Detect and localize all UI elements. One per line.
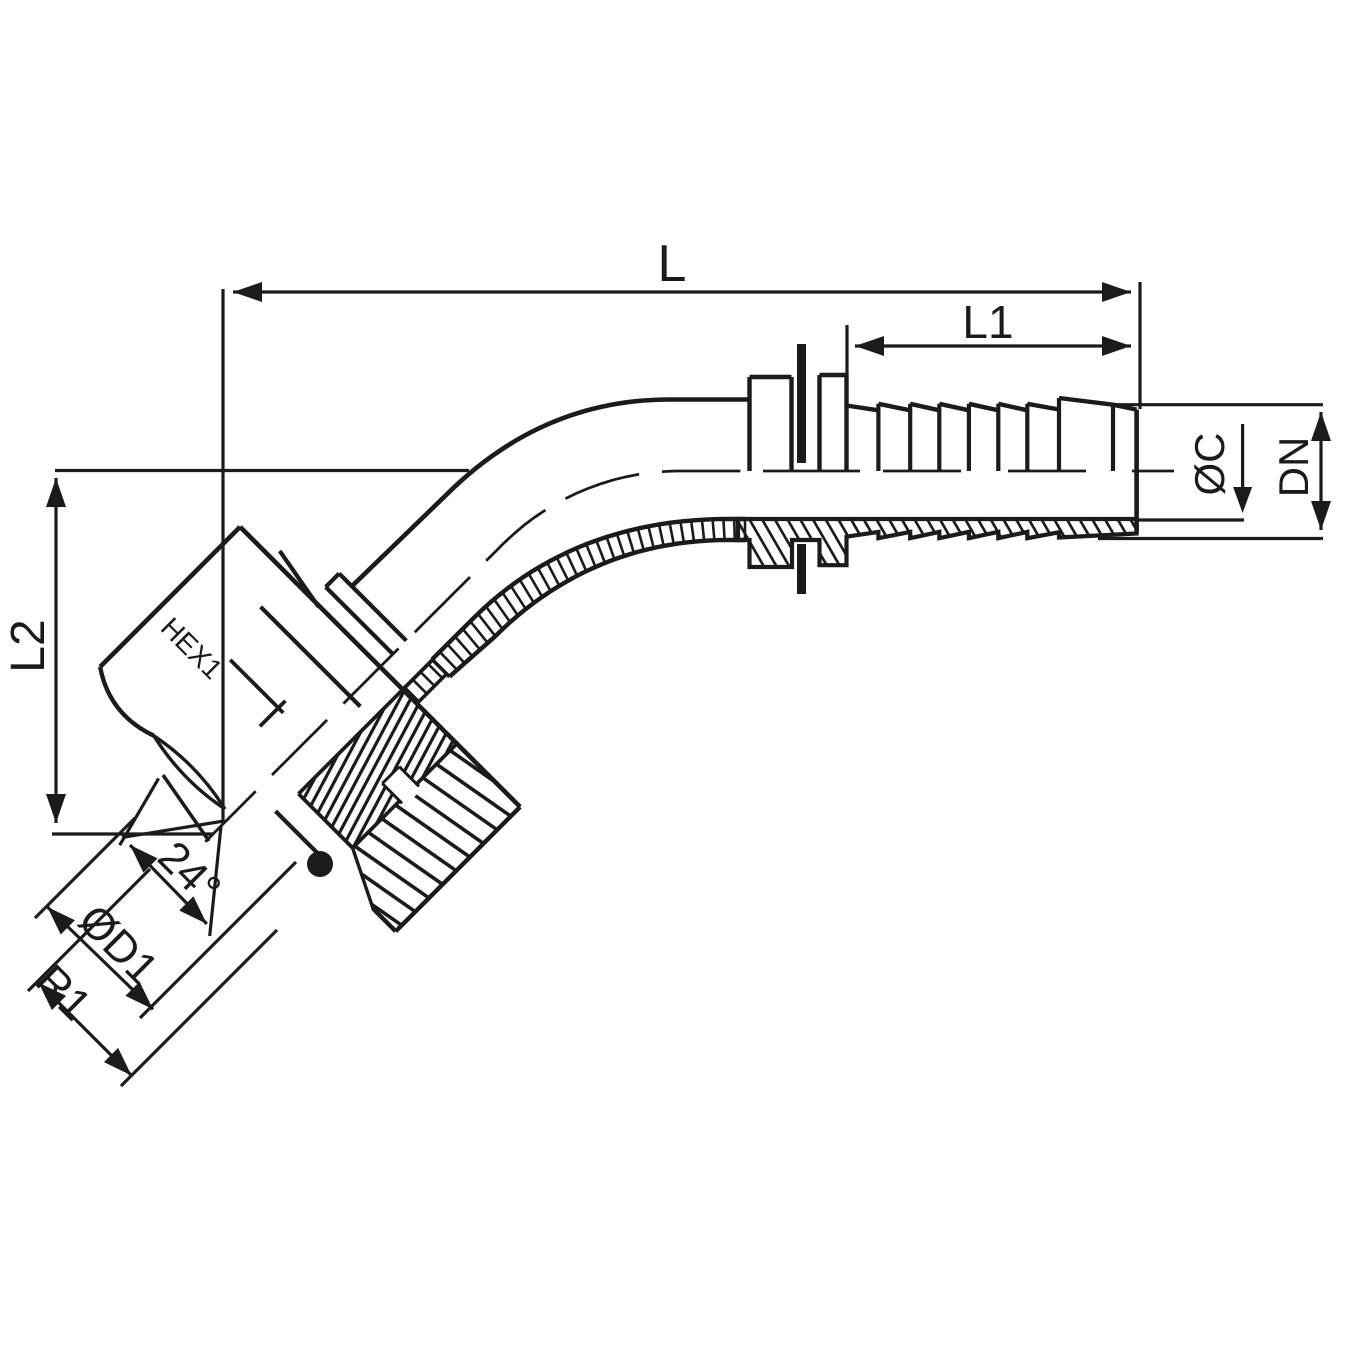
- svg-text:ØC: ØC: [1186, 433, 1233, 496]
- svg-text:L: L: [658, 235, 687, 293]
- svg-text:L1: L1: [962, 296, 1013, 348]
- svg-text:DN: DN: [1270, 437, 1317, 498]
- svg-text:L2: L2: [2, 619, 55, 672]
